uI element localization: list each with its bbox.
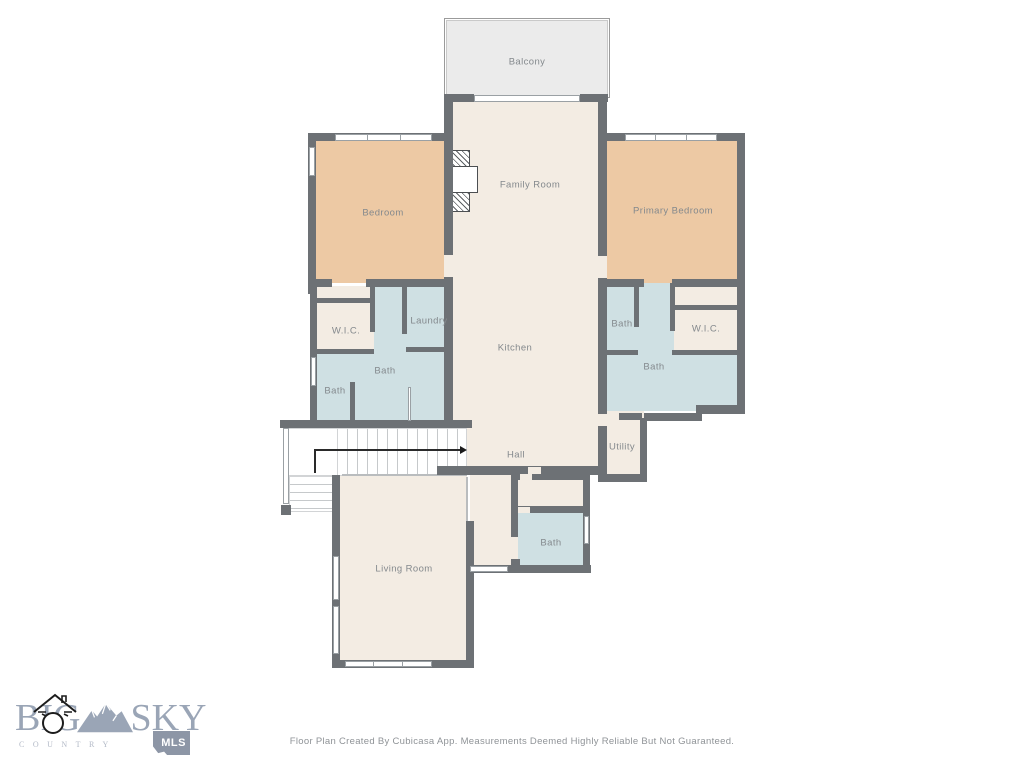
wall-segment <box>598 278 607 480</box>
wall-segment <box>511 565 591 573</box>
wall-segment <box>634 283 639 327</box>
wall-segment <box>444 94 453 255</box>
door-opening <box>528 467 541 474</box>
wall-segment <box>310 287 317 423</box>
room-label-kitchen: Kitchen <box>498 343 533 354</box>
room-label-laundry: Laundry <box>410 316 447 327</box>
floorplan-caption: Floor Plan Created By Cubicasa App. Meas… <box>290 736 734 747</box>
logo-word-sky: SKY <box>130 703 206 733</box>
mls-badge: MLS <box>153 731 190 755</box>
room-bath-right-large <box>604 353 737 411</box>
window <box>335 134 368 141</box>
wall-segment <box>672 279 745 287</box>
room-label-primary-bedroom: Primary Bedroom <box>633 206 713 217</box>
room-label-wic-right: W.I.C. <box>692 324 720 335</box>
fireplace-firebox <box>451 166 478 193</box>
bigsky-mls-logo: BIG SKY COUNTRY MLS <box>15 692 210 762</box>
window <box>311 357 316 386</box>
room-label-bath-right-small: Bath <box>611 319 632 330</box>
wall-segment <box>674 305 737 310</box>
stair-arrow-head <box>460 446 467 454</box>
wall-segment <box>406 347 450 352</box>
room-label-living-room: Living Room <box>375 564 432 575</box>
wall-segment <box>366 279 448 287</box>
stair-winder-steps <box>289 476 337 512</box>
logo-word-country: COUNTRY <box>19 740 117 749</box>
wall-segment <box>466 521 474 668</box>
window <box>400 134 432 141</box>
wall-segment <box>672 350 737 355</box>
house-icon <box>32 692 78 740</box>
wall-segment <box>350 382 355 422</box>
window <box>283 428 289 504</box>
room-label-bath-lower: Bath <box>540 538 561 549</box>
wall-segment <box>737 133 745 294</box>
wall-segment <box>644 413 702 421</box>
room-corridor-right <box>638 283 674 353</box>
window <box>474 95 580 102</box>
door-opening <box>607 413 619 420</box>
window <box>333 556 339 600</box>
room-wic-left <box>316 286 374 352</box>
wall-segment <box>598 474 647 482</box>
room-bath-left-large <box>354 352 452 422</box>
door-opening <box>444 255 453 277</box>
room-label-wic-left: W.I.C. <box>332 326 360 337</box>
window <box>367 134 401 141</box>
wall-segment <box>281 505 291 515</box>
room-label-balcony: Balcony <box>509 57 546 68</box>
mountain-icon <box>77 700 133 733</box>
staircase-landing <box>288 428 338 476</box>
room-wic-right <box>674 283 737 353</box>
window <box>625 134 656 141</box>
window <box>584 516 589 544</box>
stair-arrow-tick <box>314 449 316 473</box>
hall-opening-line <box>466 477 468 521</box>
window <box>470 566 508 572</box>
door-opening <box>598 256 607 278</box>
wall-segment <box>598 94 607 256</box>
room-label-bath-left-small: Bath <box>324 386 345 397</box>
door-leaf <box>408 387 411 421</box>
room-label-family-room: Family Room <box>500 180 560 191</box>
wall-segment <box>640 418 647 478</box>
door-opening <box>520 474 532 480</box>
window <box>333 606 339 654</box>
wall-segment <box>737 287 745 408</box>
room-label-bath-right-large: Bath <box>643 362 664 373</box>
wall-segment <box>316 298 372 303</box>
window <box>309 147 315 176</box>
window <box>402 661 432 667</box>
room-label-bedroom: Bedroom <box>362 208 403 219</box>
door-opening <box>598 414 607 426</box>
door-opening <box>518 507 530 513</box>
window <box>686 134 717 141</box>
window <box>655 134 687 141</box>
wall-segment <box>280 420 472 428</box>
window <box>345 661 374 667</box>
floor-plan-page: Balcony Family Room Bedroom Primary Bedr… <box>0 0 1024 768</box>
window <box>373 661 403 667</box>
wall-segment <box>604 350 638 355</box>
stair-direction-arrow <box>314 449 462 451</box>
wall-segment <box>316 349 374 354</box>
room-label-utility: Utility <box>609 442 635 453</box>
room-family-kitchen-hall <box>452 100 602 470</box>
wall-segment <box>402 286 407 334</box>
room-label-hall: Hall <box>507 450 525 461</box>
room-label-bath-left-large: Bath <box>374 366 395 377</box>
wall-segment <box>308 279 332 287</box>
wall-segment <box>370 286 375 332</box>
wall-segment <box>696 405 745 414</box>
